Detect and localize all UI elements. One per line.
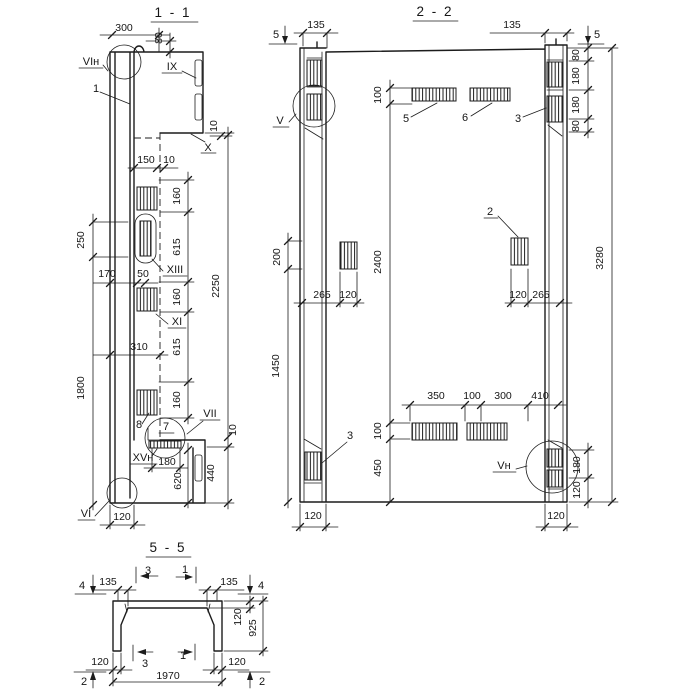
dim-120-br: 120: [547, 510, 565, 522]
dim-350: 350: [427, 390, 445, 402]
dim-120-rb: 120: [571, 481, 583, 499]
dim-135-right-s55: 135: [220, 576, 238, 588]
s11-outline: [110, 46, 205, 503]
dim-120-bl-s55: 120: [91, 656, 109, 668]
cut-mark-2-right: 2: [259, 676, 265, 688]
cut-mark-2-left: 2: [81, 676, 87, 688]
s11-slot-plate: [140, 221, 151, 256]
mark-vi: VI: [81, 508, 91, 520]
s55-cut4-right-arrow-icon: [247, 586, 253, 594]
dim-2250: 2250: [210, 274, 222, 298]
section-1-1-title: 1 - 1: [154, 5, 191, 20]
s11-groove-top-2: [195, 94, 202, 120]
dim-265-left: 265: [313, 289, 331, 301]
dim-450: 450: [372, 459, 384, 477]
dim-120-bl: 120: [304, 510, 322, 522]
dim-615-2: 615: [171, 338, 183, 356]
dim-160-2: 160: [171, 288, 183, 306]
dim-180: 180: [158, 456, 176, 468]
cut-mark-3-bottom: 3: [142, 658, 148, 670]
dim-170: 170: [98, 268, 116, 280]
dim-310: 310: [130, 341, 148, 353]
dim-100-top: 100: [372, 86, 384, 104]
mark-pos6: 6: [462, 112, 468, 124]
s22-cut5-left-arrow-icon: [282, 36, 288, 44]
section-2-2: 2 - 2 135 135 80 180 180 80 3280: [269, 4, 618, 531]
mark-ix: IX: [167, 61, 178, 73]
dim-620: 620: [172, 472, 184, 490]
s11-embed-plate-3: [137, 390, 157, 415]
dim-2400: 2400: [372, 250, 384, 274]
mark-vn: Vн: [497, 460, 510, 472]
mark-pos3-left: 3: [347, 430, 353, 442]
section-2-2-title: 2 - 2: [416, 4, 453, 19]
dim-120-flange: 120: [232, 608, 244, 626]
s11-groove-top-1: [195, 60, 202, 86]
dim-180-b: 180: [570, 96, 582, 114]
section-5-5-title: 5 - 5: [149, 540, 186, 555]
dim-200: 200: [271, 248, 283, 266]
dim-180-rb: 180: [571, 456, 583, 474]
s22-cut5-right-arrow-icon: [585, 36, 591, 44]
cut-mark-4-left: 4: [79, 580, 85, 592]
mark-vin: VIн: [83, 56, 99, 68]
blueprint-page: 1 - 1 300 80 10 150 10 160 615 160: [0, 0, 700, 700]
s22-embed-bottom-1: [412, 423, 457, 440]
cut-mark-5-right: 5: [594, 29, 600, 41]
section-5-5: 5 - 5 135 135 120 925 120 120 1970 4 4 3…: [74, 540, 270, 688]
dim-1450: 1450: [270, 354, 282, 378]
mark-xi: XI: [172, 316, 182, 328]
dim-120-s11: 120: [113, 511, 131, 523]
mark-pos7: 7: [163, 421, 169, 433]
dim-1800: 1800: [75, 376, 87, 400]
s11-groove-foot: [195, 455, 202, 481]
mark-pos1: 1: [93, 83, 99, 95]
mark-xvn: XVн: [133, 452, 154, 464]
dim-10-foot: 10: [227, 424, 239, 436]
dim-150: 150: [137, 154, 155, 166]
s22-embed-left-mid: [340, 242, 357, 269]
s11-bracket-plate: [149, 441, 181, 448]
dim-120-right: 120: [509, 289, 527, 301]
dim-180-a: 180: [570, 67, 582, 85]
s55-cut3-bottom-arrow-icon: [137, 649, 146, 655]
dim-135-left: 135: [307, 19, 325, 31]
cut-mark-3-top: 3: [145, 565, 151, 577]
s22-left-col-plate-1: [307, 60, 322, 86]
s22-embed-6: [470, 88, 510, 101]
dim-300: 300: [115, 22, 133, 34]
s22-dim-ticks: [285, 30, 616, 531]
mark-vii: VII: [203, 408, 216, 420]
section-1-1: 1 - 1 300 80 10 150 10 160 615 160: [75, 5, 239, 529]
dim-120-left: 120: [339, 289, 357, 301]
s22-left-col-plate-2: [307, 94, 322, 120]
dim-410: 410: [531, 390, 549, 402]
s55-outline: [113, 601, 222, 651]
mark-xiii: XIII: [167, 264, 184, 276]
s22-embed-2: [511, 238, 528, 265]
dim-10-mid: 10: [163, 154, 175, 166]
dim-80-b: 80: [570, 120, 582, 132]
s22-right-col-plate-4: [547, 470, 563, 487]
drawing-canvas: 1 - 1 300 80 10 150 10 160 615 160: [0, 0, 700, 700]
cut-mark-1-bottom: 1: [180, 650, 186, 662]
cut-mark-1-top: 1: [182, 564, 188, 576]
mark-pos8: 8: [136, 419, 142, 431]
mark-pos3-right: 3: [515, 113, 521, 125]
s22-right-col-plate-1: [547, 62, 563, 87]
s22-right-col-plate-2: [547, 96, 563, 122]
mark-x: X: [204, 142, 212, 154]
s11-embed-plate-2: [137, 288, 157, 311]
dim-440: 440: [205, 464, 217, 482]
dim-160-3: 160: [171, 391, 183, 409]
cut-mark-5-left: 5: [273, 29, 279, 41]
dim-1970: 1970: [156, 670, 180, 682]
s22-embed-5: [412, 88, 456, 101]
dim-80-a: 80: [570, 49, 582, 61]
dim-250: 250: [75, 231, 87, 249]
dim-120-br-s55: 120: [228, 656, 246, 668]
mark-pos5: 5: [403, 113, 409, 125]
dim-925: 925: [247, 619, 259, 637]
dim-135-left-s55: 135: [99, 576, 117, 588]
s22-left-col-plate-3: [305, 452, 321, 480]
dim-135-right: 135: [503, 19, 521, 31]
dim-3280: 3280: [594, 246, 606, 270]
dim-10-top: 10: [208, 120, 220, 132]
s11-detail-circle-vin: [107, 45, 141, 79]
dim-100-bot: 100: [372, 422, 384, 440]
dim-300-s22: 300: [494, 390, 512, 402]
dim-50: 50: [137, 268, 149, 280]
dim-265-right: 265: [532, 289, 550, 301]
mark-pos2: 2: [487, 206, 493, 218]
s11-embed-plate-1: [137, 187, 157, 210]
cut-mark-4-right: 4: [258, 580, 264, 592]
s22-embed-bottom-2: [467, 423, 507, 440]
dim-100-mid: 100: [463, 390, 481, 402]
mark-v: V: [276, 115, 284, 127]
s22-right-col-plate-3: [547, 449, 563, 467]
dim-615-1: 615: [171, 238, 183, 256]
dim-80: 80: [153, 32, 165, 44]
dim-160-1: 160: [171, 187, 183, 205]
